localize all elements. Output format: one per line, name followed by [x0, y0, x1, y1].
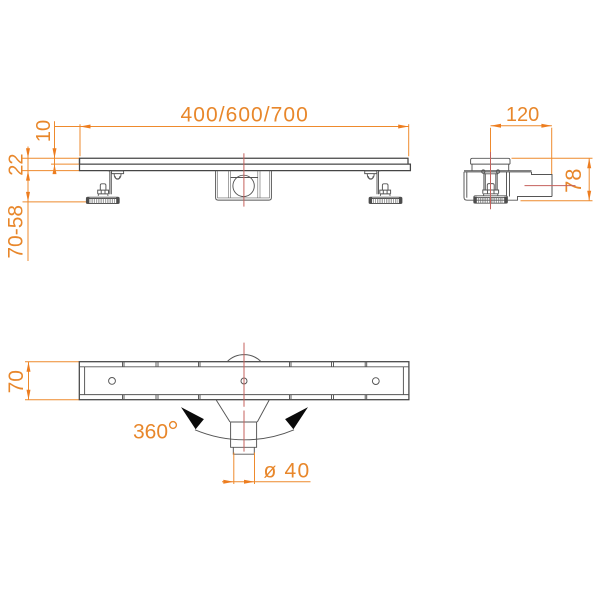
svg-text:22: 22: [5, 153, 27, 175]
svg-text:70: 70: [5, 370, 28, 393]
svg-text:10: 10: [33, 120, 55, 142]
svg-text:120: 120: [506, 104, 539, 126]
svg-text:78: 78: [561, 168, 586, 192]
svg-text:ø 40: ø 40: [264, 460, 311, 483]
svg-text:360: 360: [133, 421, 168, 444]
svg-text:400/600/700: 400/600/700: [181, 103, 309, 126]
svg-text:70-58: 70-58: [5, 205, 28, 259]
